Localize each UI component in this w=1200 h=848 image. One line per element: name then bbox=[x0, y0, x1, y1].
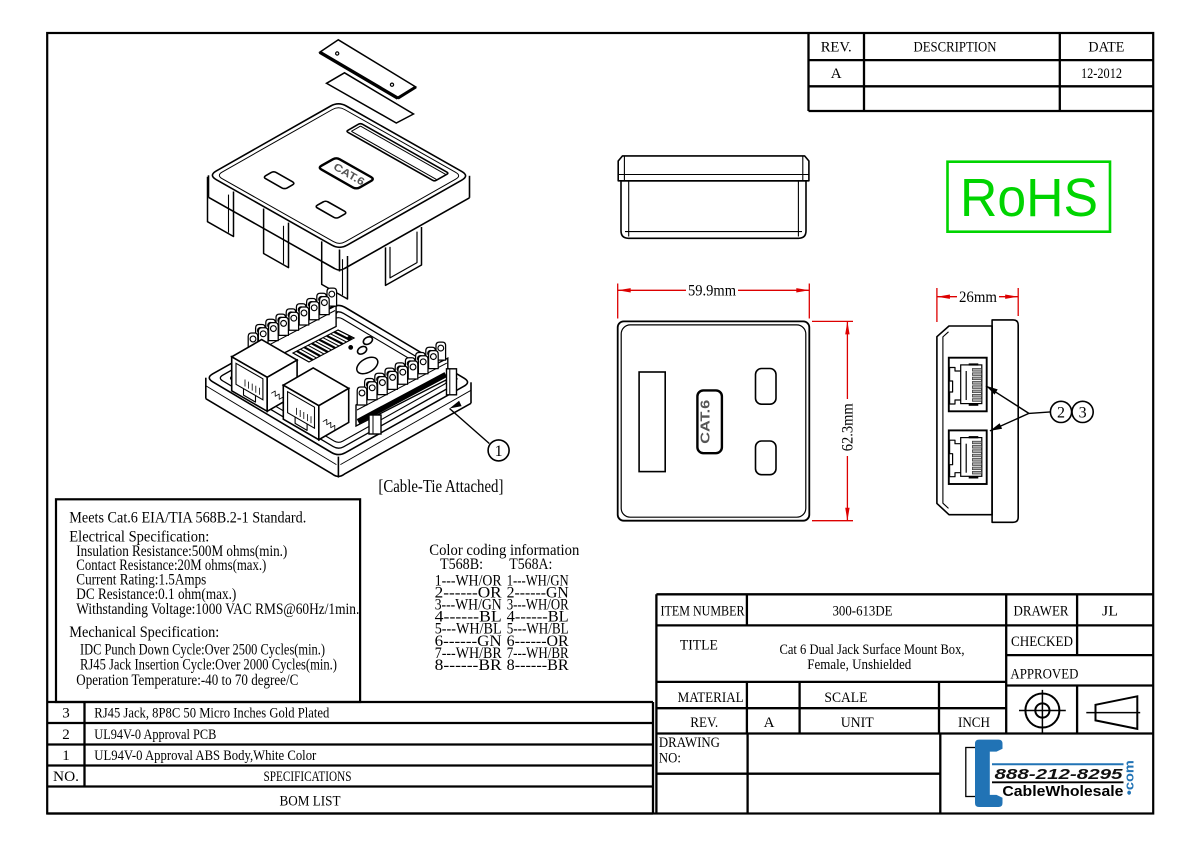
svg-text:NO.: NO. bbox=[53, 769, 79, 785]
svg-text:DRAWER: DRAWER bbox=[1014, 603, 1069, 619]
svg-text:DESCRIPTION: DESCRIPTION bbox=[914, 40, 997, 56]
svg-text:3: 3 bbox=[62, 706, 70, 722]
svg-text:59.9mm: 59.9mm bbox=[688, 283, 737, 300]
svg-text:MATERIAL: MATERIAL bbox=[678, 690, 744, 706]
svg-text:UL94V-0 Approval PCB: UL94V-0 Approval PCB bbox=[94, 727, 216, 743]
svg-text:Meets Cat.6 EIA/TIA 568B.2-1 S: Meets Cat.6 EIA/TIA 568B.2-1 Standard. bbox=[69, 509, 306, 526]
svg-text:RJ45 Jack Insertion Cycle:Over: RJ45 Jack Insertion Cycle:Over 2000 Cycl… bbox=[80, 657, 337, 674]
svg-text:T568A:: T568A: bbox=[509, 556, 552, 573]
svg-text:3: 3 bbox=[1079, 405, 1087, 422]
svg-text:2: 2 bbox=[62, 727, 70, 743]
svg-text:CAT.6: CAT.6 bbox=[698, 400, 713, 444]
svg-text:DATE: DATE bbox=[1088, 40, 1124, 56]
svg-text:8------BR: 8------BR bbox=[507, 657, 570, 674]
svg-text:BOM LIST: BOM LIST bbox=[280, 794, 341, 810]
svg-text:26mm: 26mm bbox=[959, 289, 998, 306]
svg-text:A: A bbox=[831, 66, 842, 82]
svg-text:UL94V-0 Approval ABS Body,Whit: UL94V-0 Approval ABS Body,White Color bbox=[94, 748, 316, 764]
svg-text:RJ45 Jack, 8P8C 50 Micro Inche: RJ45 Jack, 8P8C 50 Micro Inches Gold Pla… bbox=[94, 706, 329, 722]
svg-text:A: A bbox=[764, 715, 775, 731]
svg-text:Female, Unshielded: Female, Unshielded bbox=[807, 657, 911, 673]
svg-text:NO:: NO: bbox=[659, 751, 681, 767]
svg-text:CHECKED: CHECKED bbox=[1011, 634, 1073, 650]
svg-text:JL: JL bbox=[1102, 603, 1118, 619]
svg-text:REV.: REV. bbox=[690, 715, 718, 731]
svg-text:62.3mm: 62.3mm bbox=[840, 403, 857, 452]
svg-text:300-613DE: 300-613DE bbox=[833, 604, 893, 620]
svg-text:Mechanical Specification:: Mechanical Specification: bbox=[69, 624, 219, 641]
svg-text:Withstanding Voltage:1000 VAC: Withstanding Voltage:1000 VAC RMS@60Hz/1… bbox=[76, 601, 359, 618]
svg-text:•com: •com bbox=[1123, 760, 1137, 795]
svg-text:SCALE: SCALE bbox=[824, 690, 867, 706]
svg-text:DRAWING: DRAWING bbox=[659, 735, 720, 751]
svg-text:ITEM NUMBER: ITEM NUMBER bbox=[661, 604, 745, 620]
svg-text:UNIT: UNIT bbox=[841, 715, 874, 731]
svg-text:1: 1 bbox=[495, 443, 503, 460]
svg-text:1: 1 bbox=[62, 748, 70, 764]
svg-text:2: 2 bbox=[1057, 405, 1065, 422]
svg-text:INCH: INCH bbox=[958, 715, 990, 731]
svg-text:RoHS: RoHS bbox=[960, 168, 1098, 228]
svg-text:12-2012: 12-2012 bbox=[1081, 66, 1122, 82]
svg-text:CableWholesale: CableWholesale bbox=[1002, 783, 1123, 800]
svg-text:8------BR: 8------BR bbox=[435, 657, 503, 674]
svg-text:TITLE: TITLE bbox=[680, 638, 718, 654]
svg-text:Operation Temperature:-40 to 7: Operation Temperature:-40 to 70 degree/C bbox=[76, 672, 298, 689]
svg-text:Cat 6 Dual Jack Surface Mount: Cat 6 Dual Jack Surface Mount Box, bbox=[780, 642, 965, 658]
svg-text:888-212-8295: 888-212-8295 bbox=[995, 767, 1124, 783]
svg-text:[Cable-Tie Attached]: [Cable-Tie Attached] bbox=[378, 476, 503, 496]
svg-text:REV.: REV. bbox=[821, 40, 852, 56]
svg-text:SPECIFICATIONS: SPECIFICATIONS bbox=[264, 769, 352, 785]
svg-text:APPROVED: APPROVED bbox=[1010, 666, 1078, 682]
svg-text:T568B:: T568B: bbox=[440, 556, 483, 573]
